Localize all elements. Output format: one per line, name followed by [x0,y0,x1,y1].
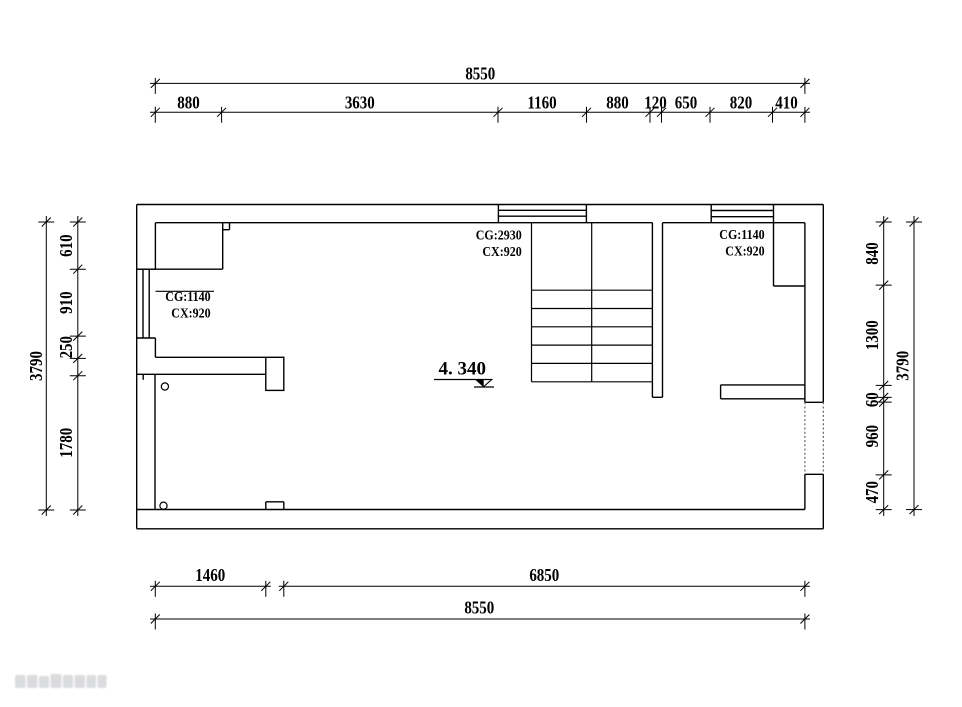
svg-text:CG:1140: CG:1140 [165,290,210,305]
svg-text:CG:2930: CG:2930 [476,228,522,243]
svg-text:820: 820 [730,92,752,113]
svg-text:1160: 1160 [527,92,556,113]
svg-text:840: 840 [862,242,883,264]
svg-text:4. 340: 4. 340 [439,359,487,380]
svg-text:650: 650 [675,92,697,113]
svg-text:3790: 3790 [892,351,913,381]
svg-text:610: 610 [56,234,77,256]
svg-text:8550: 8550 [464,597,494,618]
svg-text:3630: 3630 [345,92,375,113]
svg-text:410: 410 [775,92,797,113]
svg-text:6850: 6850 [529,565,559,586]
svg-text:960: 960 [862,425,883,447]
svg-text:CX:920: CX:920 [725,244,764,259]
svg-text:910: 910 [56,291,77,313]
svg-text:CX:920: CX:920 [482,245,521,260]
svg-text:1300: 1300 [862,320,883,350]
svg-text:CG:1140: CG:1140 [719,227,764,242]
svg-text:60: 60 [862,392,883,407]
svg-text:1460: 1460 [195,565,225,586]
svg-text:880: 880 [177,92,199,113]
svg-text:1780: 1780 [56,428,77,458]
svg-text:CX:920: CX:920 [171,306,210,321]
svg-text:880: 880 [606,92,628,113]
svg-text:250: 250 [56,336,77,358]
svg-text:8550: 8550 [465,63,495,84]
svg-text:3790: 3790 [26,351,47,381]
svg-text:470: 470 [862,481,883,503]
svg-text:120: 120 [644,92,666,113]
